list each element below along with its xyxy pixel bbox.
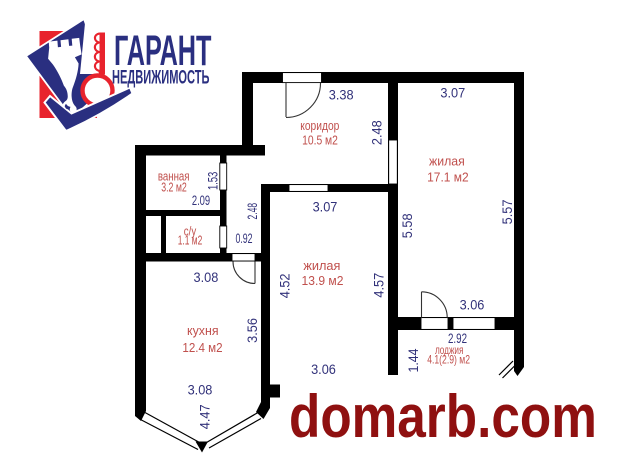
svg-text:1.44: 1.44 bbox=[405, 348, 421, 372]
svg-text:коридор: коридор bbox=[300, 118, 339, 133]
svg-text:3.56: 3.56 bbox=[244, 318, 260, 343]
svg-text:1.1 м2: 1.1 м2 bbox=[178, 233, 203, 248]
svg-text:13.9 м2: 13.9 м2 bbox=[302, 273, 344, 288]
svg-text:10.5 м2: 10.5 м2 bbox=[302, 133, 338, 148]
svg-text:2.48: 2.48 bbox=[369, 120, 385, 145]
svg-text:2.92: 2.92 bbox=[448, 330, 467, 346]
svg-text:жилая: жилая bbox=[303, 258, 340, 273]
svg-text:кухня: кухня bbox=[187, 323, 219, 338]
svg-text:4.47: 4.47 bbox=[196, 404, 212, 429]
svg-text:3.2 м2: 3.2 м2 bbox=[161, 179, 187, 194]
svg-text:4.52: 4.52 bbox=[277, 273, 293, 298]
svg-text:3.06: 3.06 bbox=[460, 297, 485, 313]
svg-text:5.58: 5.58 bbox=[399, 213, 415, 238]
svg-text:4.57: 4.57 bbox=[371, 273, 387, 298]
svg-text:1.53: 1.53 bbox=[205, 172, 221, 190]
svg-text:2.48: 2.48 bbox=[244, 203, 260, 220]
svg-text:3.06: 3.06 bbox=[311, 361, 336, 377]
svg-text:12.4 м2: 12.4 м2 bbox=[182, 340, 222, 355]
svg-text:3.38: 3.38 bbox=[329, 87, 354, 103]
svg-text:жилая: жилая bbox=[429, 154, 465, 169]
svg-text:2.09: 2.09 bbox=[192, 192, 210, 208]
svg-text:3.07: 3.07 bbox=[313, 198, 338, 214]
svg-text:domarb.com: domarb.com bbox=[289, 384, 597, 450]
svg-text:НЕДВИЖИМОСТЬ: НЕДВИЖИМОСТЬ bbox=[112, 68, 209, 89]
svg-text:3.08: 3.08 bbox=[188, 382, 213, 398]
svg-text:5.57: 5.57 bbox=[499, 199, 515, 224]
svg-text:3.08: 3.08 bbox=[194, 269, 219, 285]
svg-text:0.92: 0.92 bbox=[235, 230, 252, 246]
svg-text:4.1(2.9) м2: 4.1(2.9) м2 bbox=[427, 353, 470, 367]
svg-text:3.07: 3.07 bbox=[440, 85, 465, 101]
svg-text:17.1 м2: 17.1 м2 bbox=[427, 169, 469, 184]
